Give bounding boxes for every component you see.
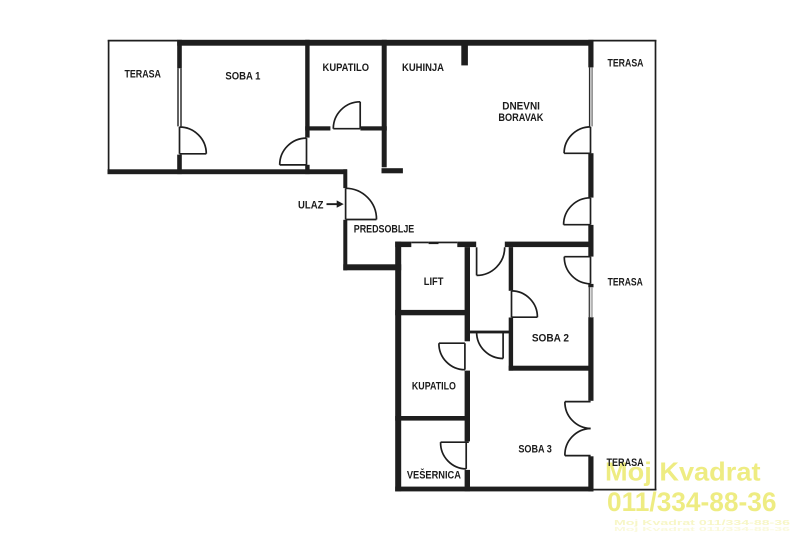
svg-text:011/334-88-36: 011/334-88-36: [607, 487, 777, 517]
svg-text:BORAVAK: BORAVAK: [498, 112, 543, 124]
svg-text:VEŠERNICA: VEŠERNICA: [407, 469, 461, 482]
svg-text:Moj Kvadrat 011/334-88-36: Moj Kvadrat 011/334-88-36: [614, 527, 790, 533]
svg-text:TERASA: TERASA: [607, 457, 644, 469]
svg-text:TERASA: TERASA: [608, 277, 643, 289]
svg-text:KUHINJA: KUHINJA: [402, 62, 444, 74]
svg-text:TERASA: TERASA: [124, 69, 161, 81]
svg-text:SOBA 1: SOBA 1: [225, 71, 260, 83]
svg-text:TERASA: TERASA: [608, 57, 644, 69]
svg-text:SOBA 2: SOBA 2: [532, 332, 569, 344]
svg-text:LIFT: LIFT: [424, 276, 444, 288]
svg-text:ULAZ: ULAZ: [298, 199, 324, 211]
svg-text:KUPATILO: KUPATILO: [412, 380, 456, 392]
svg-text:Moj Kvadrat 011/334-88-36: Moj Kvadrat 011/334-88-36: [614, 518, 790, 527]
svg-text:PREDSOBLJE: PREDSOBLJE: [354, 223, 415, 235]
svg-text:KUPATILO: KUPATILO: [323, 62, 370, 74]
svg-text:SOBA 3: SOBA 3: [518, 444, 552, 456]
svg-text:DNEVNI: DNEVNI: [502, 100, 540, 112]
